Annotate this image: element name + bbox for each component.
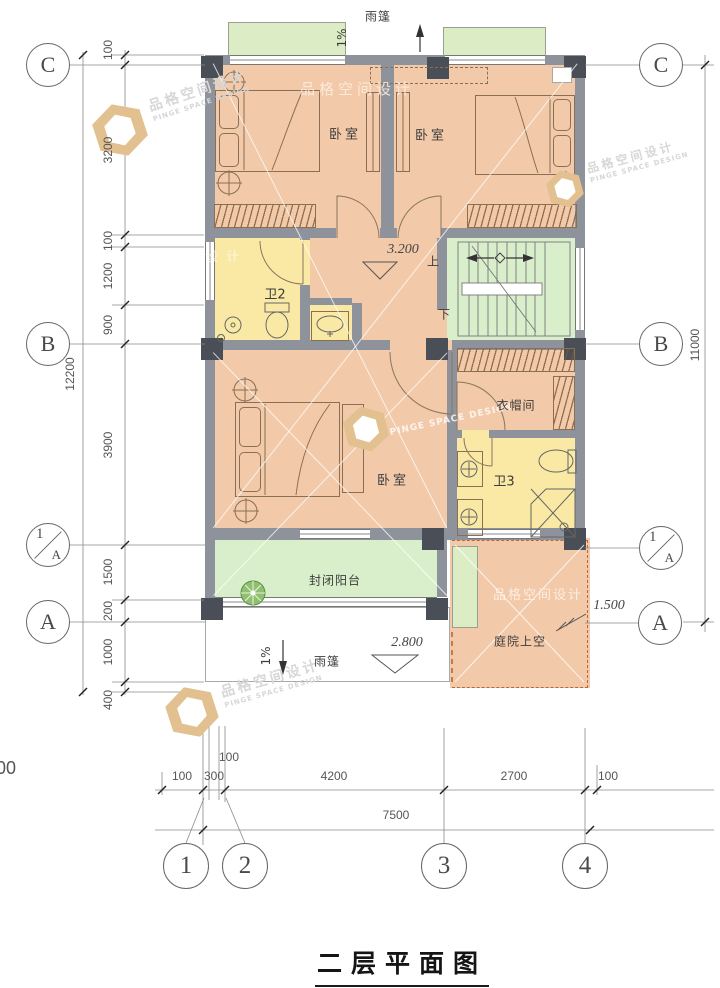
pillow (239, 407, 261, 447)
slope-label-top: 1% (335, 28, 349, 47)
grid-bubble-right-a: A (638, 601, 682, 645)
window-balcony-front (215, 597, 437, 607)
window-top-right (445, 55, 545, 65)
grid-bubble-left-a: A (26, 600, 70, 644)
grid-bubble-1: 1 (163, 843, 209, 889)
room-label-bath3: 卫3 (493, 471, 514, 490)
closet-cloakroom-right (553, 376, 575, 430)
floor-plan-sheet: 卧室 卧室 卧室 卫2 卫3 衣帽间 封闭阳台 庭院上空 雨篷 雨篷 1% 1%… (0, 0, 720, 988)
dim-left-3: 1200 (101, 263, 115, 290)
door-opening-bath3 (462, 430, 489, 438)
canopy-label-top: 雨篷 (365, 8, 391, 25)
grid-bubble-2: 2 (222, 843, 268, 889)
grid-label: C (654, 52, 669, 78)
grid-label-aux: 1 A (27, 523, 69, 567)
dim-left-5: 3900 (101, 432, 115, 459)
grid-label: A (40, 609, 56, 635)
cabinet-bedroom2 (370, 67, 488, 84)
wardrobe-partition-left (366, 92, 380, 172)
room-label-bedroom-2: 卧室 (415, 125, 447, 144)
stair-down-label: 下 (438, 306, 450, 323)
grid-label: 3 (438, 852, 451, 880)
courtyard-dashed-border (452, 540, 588, 688)
wall-stair-side (437, 238, 447, 310)
column-a1 (201, 598, 223, 620)
dim-left-6: 1500 (101, 559, 115, 586)
vanity-bath3-2 (457, 499, 483, 536)
pinge-logo-icon (161, 680, 223, 744)
wardrobe-partition-right (396, 92, 410, 172)
grid-label: A (665, 550, 674, 566)
grid-label: A (652, 610, 668, 636)
dim-edge-partial: 00 (0, 758, 16, 779)
dim-left-9: 400 (101, 690, 115, 710)
vanity-bath3-1 (457, 451, 483, 487)
grid-label: 1 (649, 529, 657, 546)
dim-left-1: 3200 (101, 137, 115, 164)
grid-label: 1 (36, 526, 44, 543)
door-opening-bedroom1 (336, 228, 380, 238)
canopy-top-left (228, 22, 346, 58)
wall-h1 (205, 228, 585, 238)
dim-bottom-3: 4200 (321, 769, 348, 783)
room-label-balcony: 封闭阳台 (309, 572, 361, 589)
pillow (553, 135, 571, 167)
dim-left-0: 100 (101, 40, 115, 60)
grid-bubble-4: 4 (562, 843, 608, 889)
grid-label: 4 (579, 852, 592, 880)
dim-bottom-5: 100 (598, 769, 618, 783)
column-b3 (426, 338, 448, 360)
window-top-left (230, 55, 345, 65)
grid-bubble-left-b: B (26, 322, 70, 366)
closet-cloakroom-top (457, 348, 575, 372)
dim-left-4: 900 (101, 315, 115, 335)
column-1a3 (422, 528, 444, 550)
grid-label: B (654, 331, 669, 357)
grid-bubble-left-1a: 1 A (26, 523, 70, 567)
grid-bubble-right-1a: 1 A (639, 526, 683, 570)
watermark-cn: 品格空间设计 (585, 134, 688, 177)
wardrobe-bedroom1 (214, 204, 316, 228)
column-b1 (201, 338, 223, 360)
grid-label: B (41, 331, 56, 357)
level-1500: 1.500 (593, 598, 625, 614)
pinge-logo-icon (88, 97, 152, 164)
grid-bubble-right-c: C (639, 43, 683, 87)
room-label-cloakroom: 衣帽间 (496, 397, 535, 414)
room-label-bedroom-1: 卧室 (329, 124, 361, 143)
dim-right-total: 11000 (688, 329, 702, 361)
dim-bottom-2: 100 (219, 750, 239, 764)
grid-bubble-left-c: C (26, 43, 70, 87)
grid-bubble-3: 3 (421, 843, 467, 889)
grid-label: 2 (239, 852, 252, 880)
grid-label: A (52, 547, 61, 563)
watermark-en: PINGE SPACE DESIGN (589, 151, 689, 185)
grid-label: C (41, 52, 56, 78)
stair-up-label: 上 (427, 253, 439, 270)
dim-left-total: 12200 (63, 357, 77, 390)
dim-bottom-4: 2700 (501, 769, 528, 783)
slope-label-bottom: 1% (259, 646, 273, 665)
door-opening-bedroom2 (397, 228, 441, 238)
stairwell-floor (447, 238, 575, 340)
room-label-courtyard: 庭院上空 (494, 633, 546, 650)
bath2-floor (215, 238, 300, 340)
grid-label: 1 (180, 852, 193, 880)
pillow (553, 99, 571, 131)
dim-bottom-total: 7500 (383, 808, 410, 822)
dim-left-2: 100 (101, 231, 115, 251)
sliding-door-balcony (300, 529, 370, 539)
room-label-bath2: 卫2 (264, 284, 285, 303)
column-1a4 (564, 528, 586, 550)
dim-left-8: 1000 (101, 639, 115, 666)
wall-master-cloak (447, 350, 457, 528)
level-2800: 2.800 (391, 635, 423, 651)
level-3200: 3.200 (387, 242, 419, 258)
canopy-label-bottom: 雨篷 (314, 653, 340, 670)
window-stair-right (575, 248, 585, 330)
pillow (219, 133, 239, 167)
dim-bottom-1: 300 (204, 769, 224, 783)
column-a3 (426, 598, 448, 620)
window-bath2-left (205, 242, 215, 300)
watermark-text: 品格空间设计 PINGE SPACE DESIGN (585, 134, 690, 184)
grid-label-aux: 1 A (640, 526, 682, 570)
dim-left-7: 200 (101, 601, 115, 621)
grid-bubble-right-b: B (639, 322, 683, 366)
drawing-title: 二层平面图 (315, 944, 489, 987)
dim-bottom-0: 100 (172, 769, 192, 783)
room-label-bedroom-master: 卧室 (377, 470, 409, 489)
